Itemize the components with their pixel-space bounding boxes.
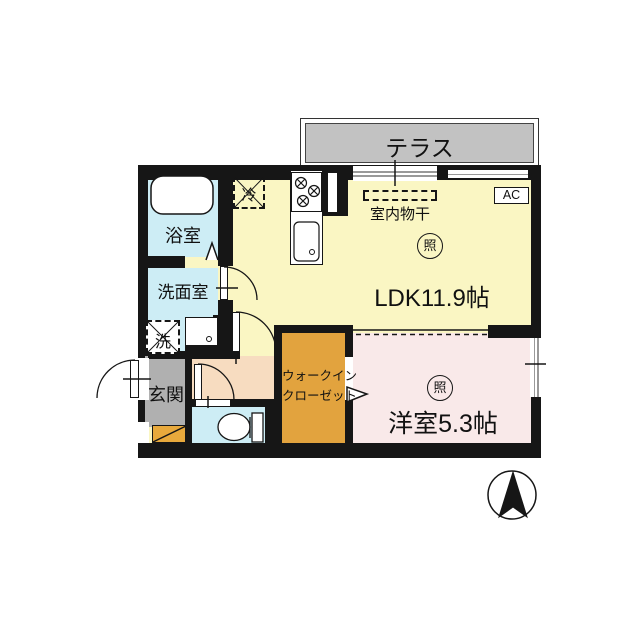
wall-wic-left	[274, 325, 282, 443]
ldk-top-window-rail	[448, 174, 528, 175]
western-window-rail2	[537, 338, 539, 397]
toilet-room	[192, 407, 265, 443]
toilet-door-opening	[196, 400, 230, 406]
western-light-symbol: 照	[427, 375, 453, 401]
ac-label: AC	[494, 188, 529, 202]
entrance-side-slot	[137, 422, 149, 443]
ldk-label: LDK11.9帖	[332, 278, 532, 313]
hallway-door-leaf	[232, 312, 240, 352]
refrigerator-label: 冷	[233, 184, 265, 205]
western-room-label: 洋室5.3帖	[343, 404, 543, 440]
floorplan: テラス	[0, 0, 640, 640]
entrance-door-leaf	[130, 360, 139, 398]
terrace-label: テラス	[300, 129, 539, 163]
bathroom-label: 浴室	[148, 222, 218, 248]
toilet-door-leaf	[194, 364, 202, 400]
wall-bath-washroom	[148, 256, 185, 268]
western-window-rail	[534, 338, 536, 397]
wall-washroom-upper	[218, 300, 233, 315]
wall-bath-kitchen	[218, 167, 233, 266]
washbasin	[185, 317, 218, 346]
compass-icon	[488, 471, 536, 519]
indoor-drying-box	[363, 190, 437, 201]
terrace-sliding-door-rail2	[353, 175, 437, 177]
kitchen-stub-slot	[328, 173, 337, 212]
indoor-drying-label: 室内物干	[352, 203, 448, 224]
entrance-label: 玄関	[145, 381, 187, 407]
wall-ldk-western-right	[488, 325, 531, 338]
laundry-label: 洗	[146, 328, 180, 352]
entrance-step	[152, 425, 187, 443]
wall-wic-top	[274, 325, 352, 333]
terrace-sliding-door	[353, 166, 437, 181]
terrace-sliding-door-rail	[353, 171, 437, 173]
hallway-room	[192, 356, 280, 403]
stove	[291, 172, 322, 212]
washroom-door-leaf	[220, 266, 228, 300]
wic-label-line2: クローゼット	[282, 385, 345, 404]
washroom-label: 洗面室	[148, 278, 218, 303]
wic-label-line1: ウォークイン	[282, 365, 345, 384]
western-window	[530, 338, 542, 397]
ldk-light-symbol: 照	[417, 233, 443, 259]
